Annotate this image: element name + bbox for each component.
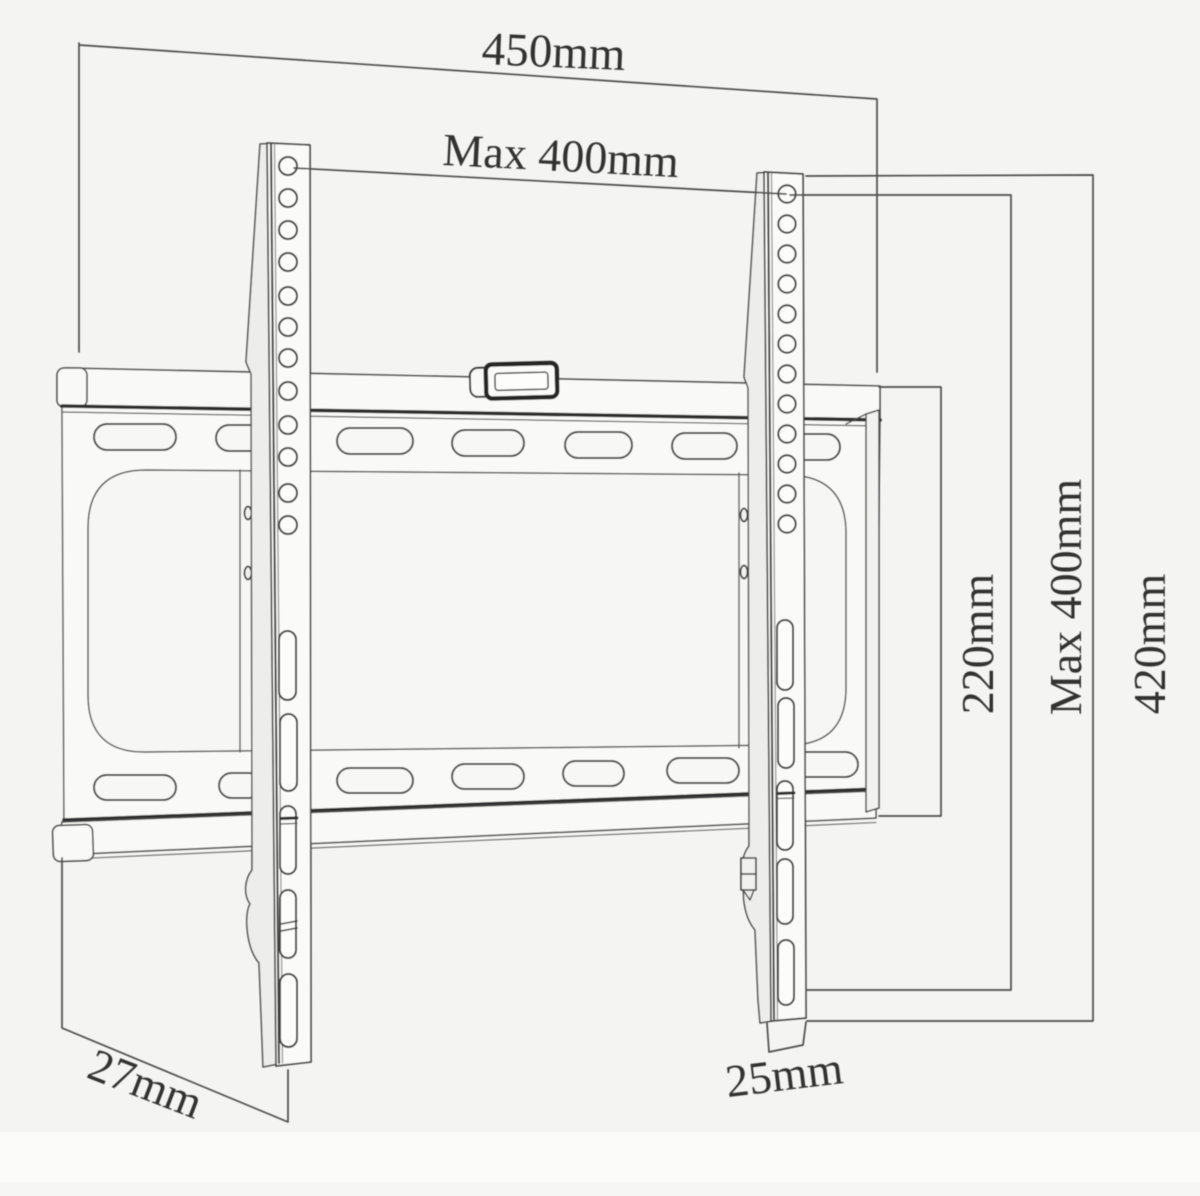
svg-text:Max 400mm: Max 400mm xyxy=(1040,479,1091,716)
svg-text:450mm: 450mm xyxy=(481,23,627,81)
svg-text:220mm: 220mm xyxy=(952,574,1003,715)
svg-text:420mm: 420mm xyxy=(1124,574,1175,715)
